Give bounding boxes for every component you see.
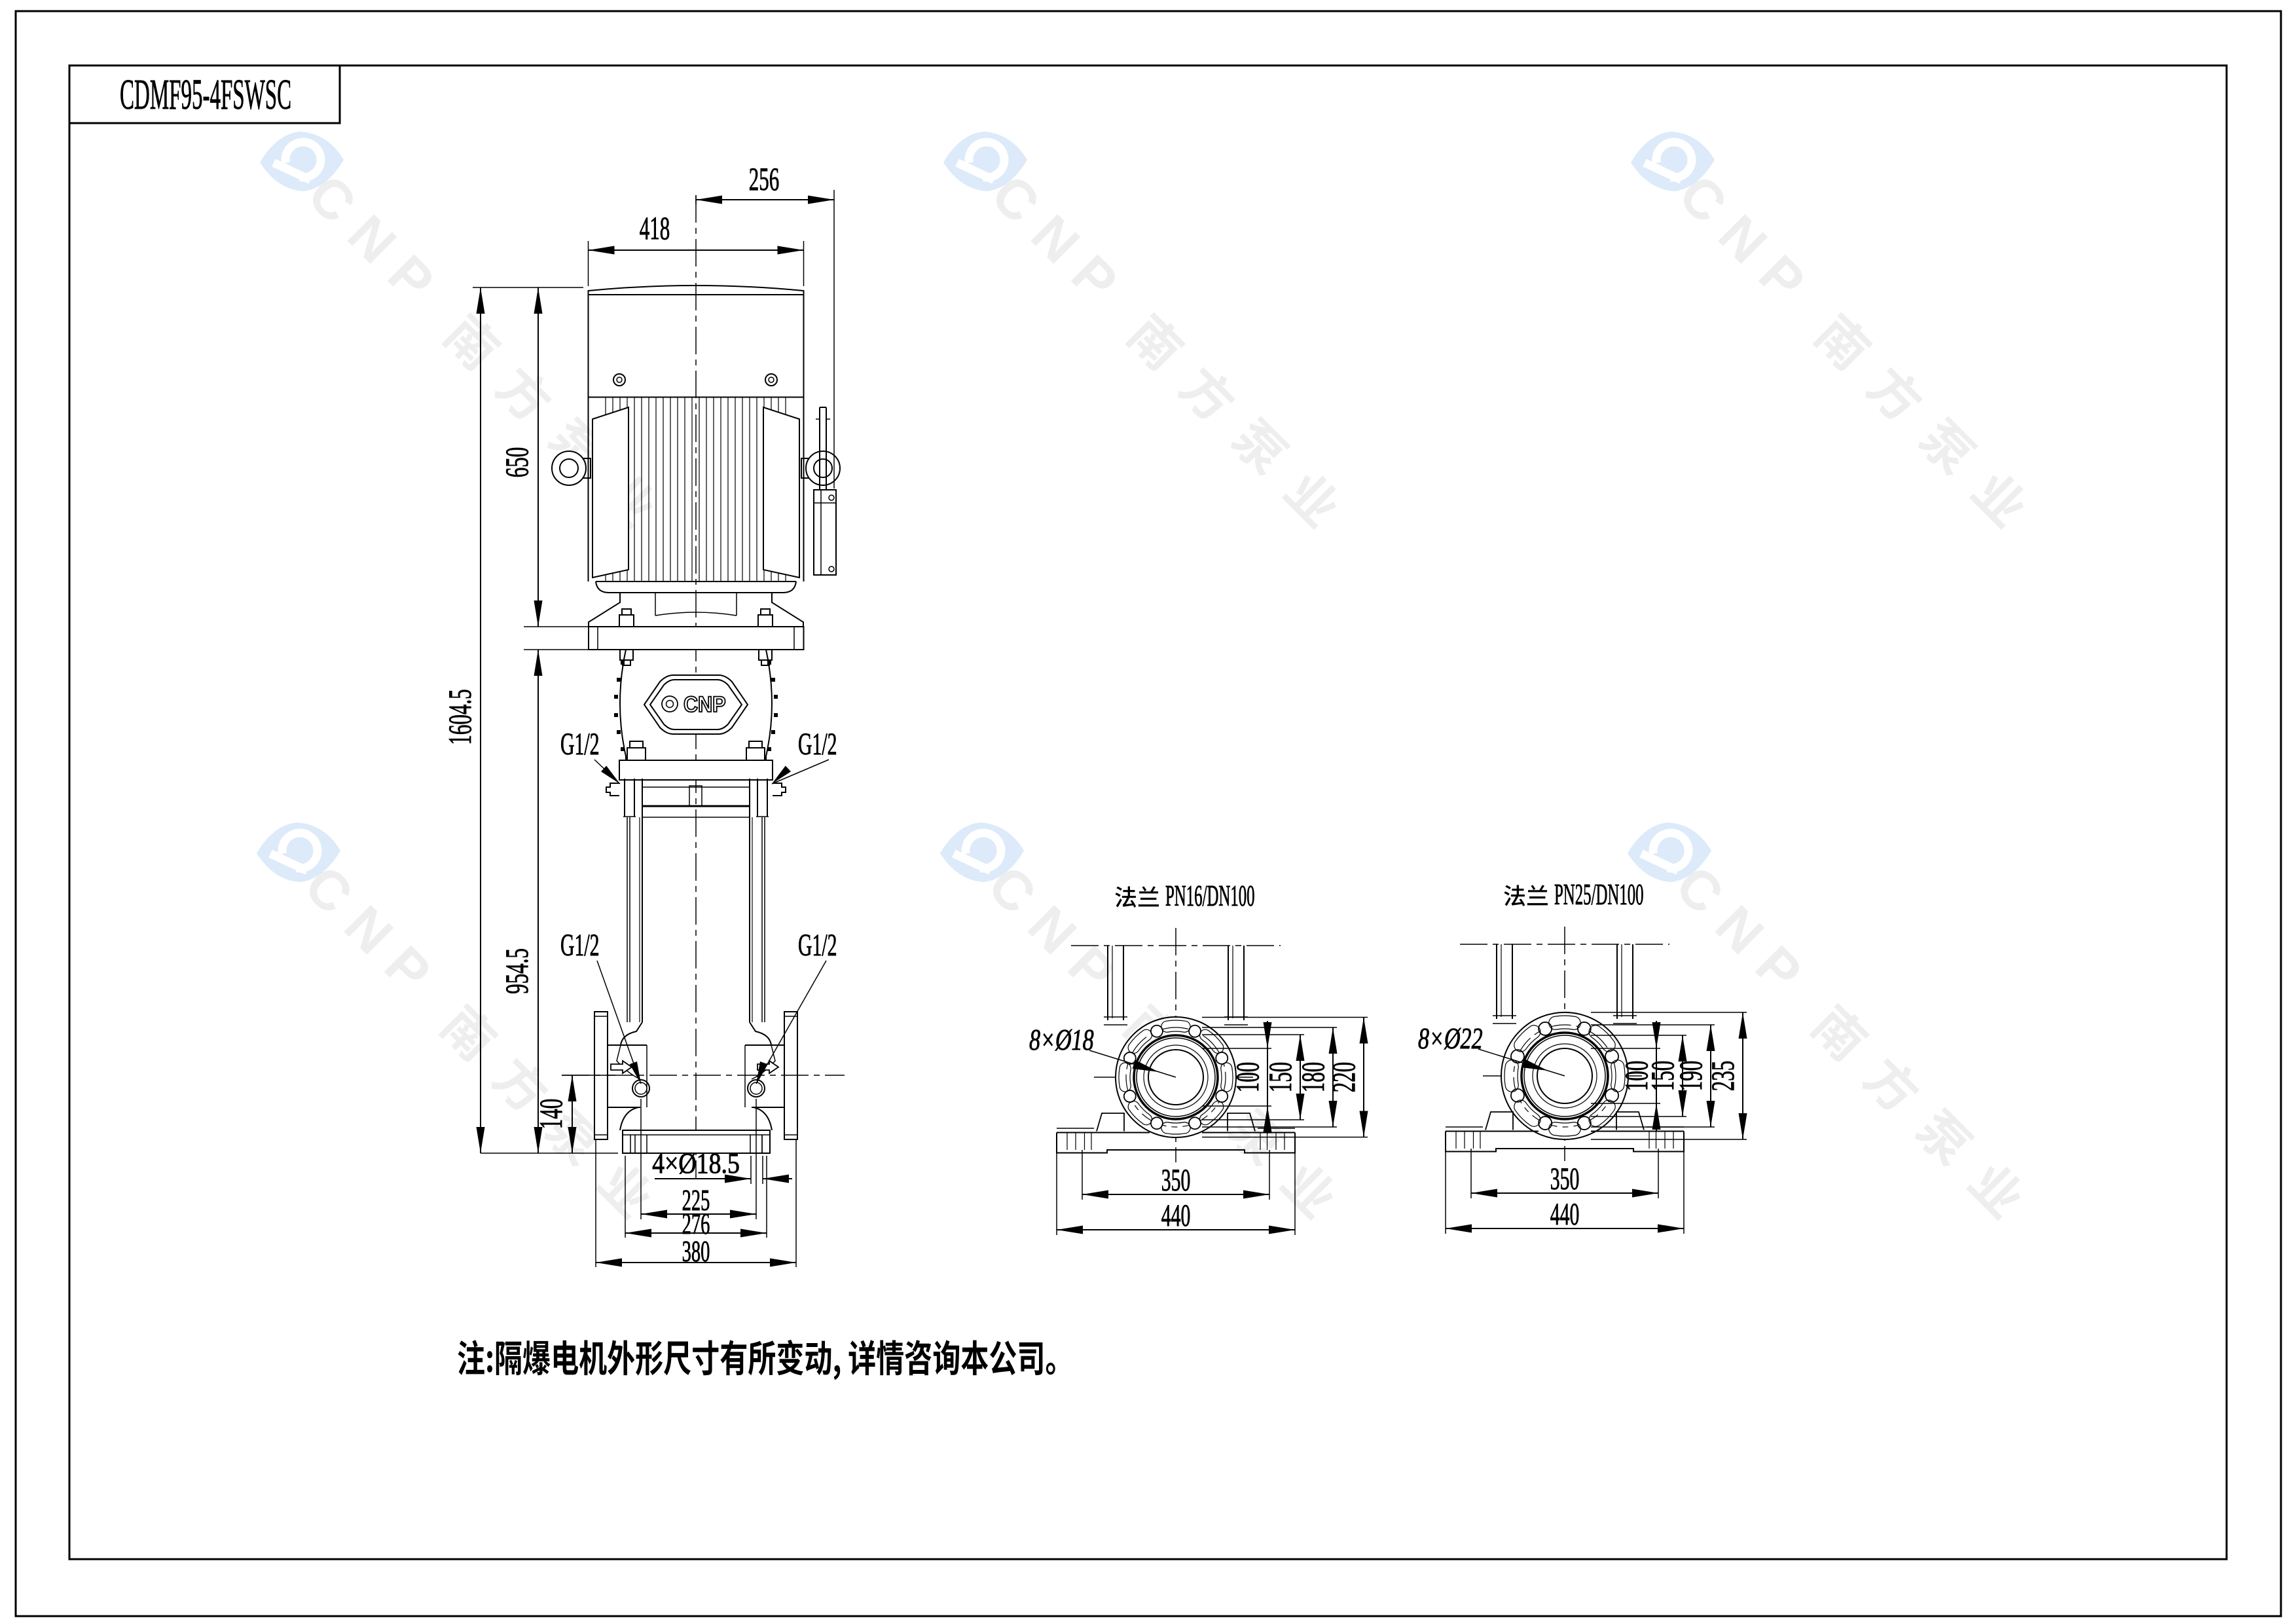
svg-text:650: 650 xyxy=(499,447,535,477)
svg-text:1604.5: 1604.5 xyxy=(442,689,478,745)
svg-text:256: 256 xyxy=(749,161,779,197)
svg-text:CDMF95-4FSWSC: CDMF95-4FSWSC xyxy=(120,71,291,119)
svg-text:PN25/DN100: PN25/DN100 xyxy=(1554,877,1644,911)
svg-text:954.5: 954.5 xyxy=(499,948,535,994)
svg-text:G1/2: G1/2 xyxy=(560,726,600,762)
svg-text:140: 140 xyxy=(533,1099,569,1129)
svg-text:380: 380 xyxy=(682,1235,710,1268)
svg-text:440: 440 xyxy=(1550,1196,1580,1232)
svg-text:4×Ø18.5: 4×Ø18.5 xyxy=(652,1147,740,1179)
svg-text:220: 220 xyxy=(1326,1062,1362,1092)
svg-text:PN16/DN100: PN16/DN100 xyxy=(1165,879,1255,912)
svg-text:G1/2: G1/2 xyxy=(560,927,600,963)
svg-text:418: 418 xyxy=(640,210,670,246)
svg-text:8×Ø22: 8×Ø22 xyxy=(1418,1022,1483,1055)
svg-text:G1/2: G1/2 xyxy=(798,927,837,963)
svg-text:190: 190 xyxy=(1673,1061,1709,1091)
svg-text:350: 350 xyxy=(1550,1161,1580,1196)
svg-text:440: 440 xyxy=(1161,1198,1191,1233)
svg-text:100: 100 xyxy=(1230,1062,1266,1092)
svg-text:235: 235 xyxy=(1705,1061,1741,1091)
svg-text:G1/2: G1/2 xyxy=(798,726,837,762)
svg-text:350: 350 xyxy=(1161,1162,1191,1198)
svg-text:8×Ø18: 8×Ø18 xyxy=(1029,1023,1094,1056)
svg-text:150: 150 xyxy=(1262,1062,1298,1092)
